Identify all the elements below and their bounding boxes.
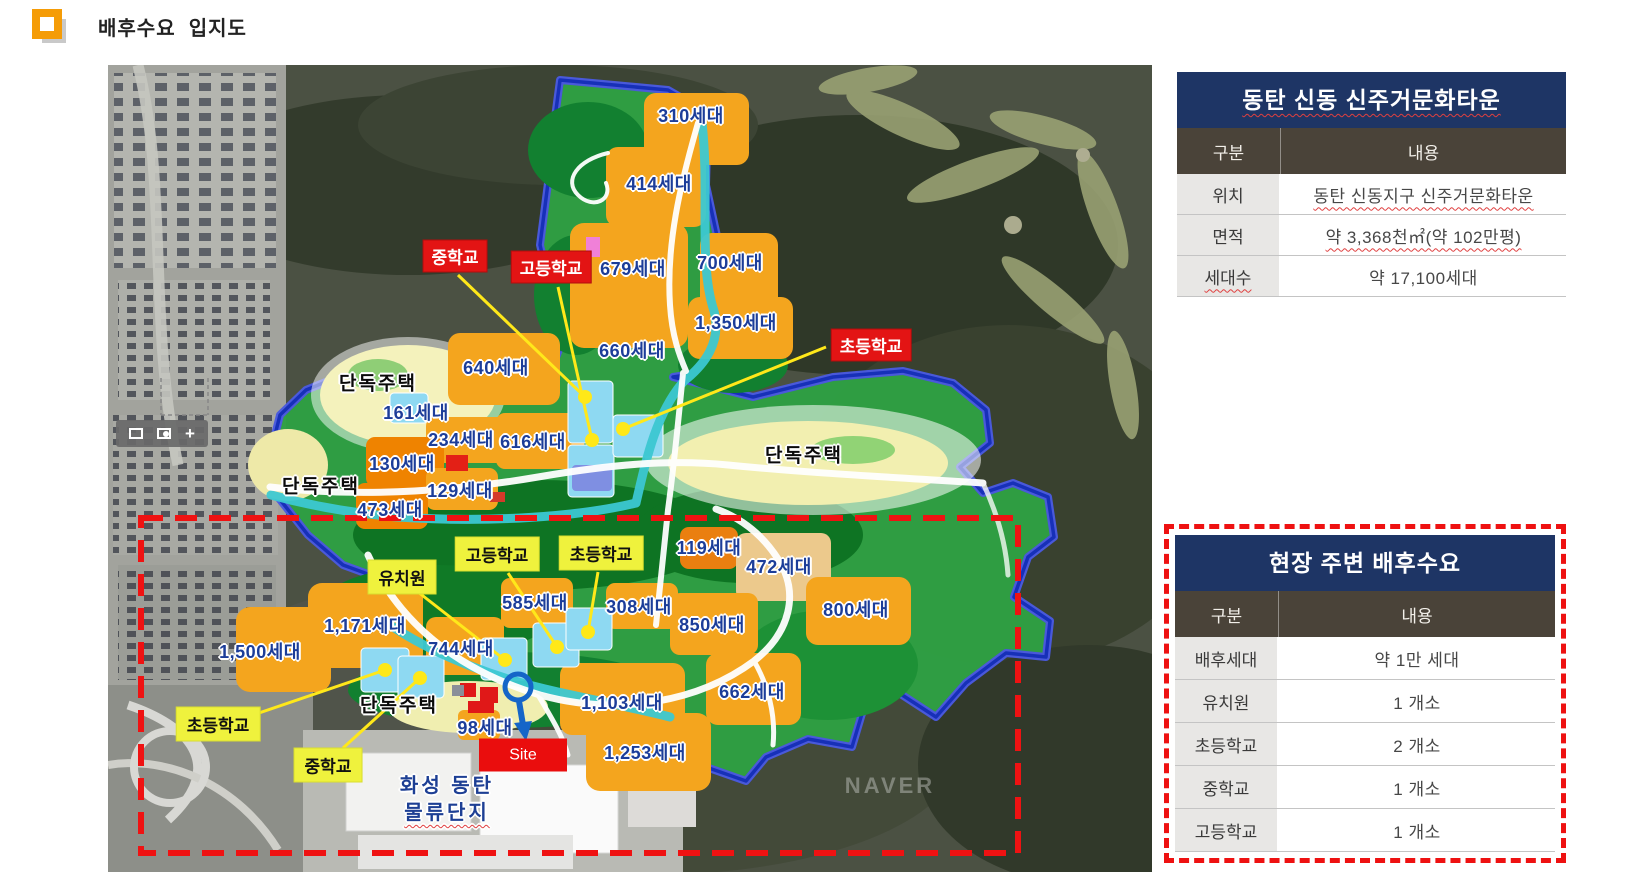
row-label: 면적	[1177, 215, 1281, 255]
table-row: 위치 동탄 신동지구 신주거문화타운	[1177, 174, 1566, 215]
row-label: 중학교	[1175, 766, 1279, 808]
housing-label: 단독주택	[339, 369, 417, 396]
unit-count-label: 662세대	[719, 678, 785, 704]
unit-count-label: 800세대	[823, 596, 889, 622]
unit-count-label: 472세대	[746, 553, 812, 579]
table-row: 면적 약 3,368천㎡(약 102만평)	[1177, 215, 1566, 256]
unit-count-label: 119세대	[677, 534, 742, 560]
unit-count-label: 585세대	[502, 589, 568, 615]
col-header-content: 내용	[1279, 591, 1555, 637]
demand-table-title: 현장 주변 배후수요	[1175, 535, 1555, 591]
row-label: 유치원	[1175, 680, 1279, 722]
table-row: 고등학교 1 개소	[1175, 809, 1555, 852]
unit-count-label: 310세대	[658, 102, 724, 128]
plus-icon[interactable]: +	[185, 425, 195, 442]
col-header-content: 내용	[1281, 128, 1566, 174]
housing-label: 단독주택	[282, 472, 360, 499]
unit-count-label: 1,103세대	[581, 689, 663, 715]
unit-count-label: 161세대	[383, 399, 449, 425]
slide: 배후수요 입지도	[0, 0, 1637, 875]
unit-count-label: 234세대	[428, 426, 494, 452]
unit-count-label: 1,253세대	[604, 739, 686, 765]
row-value: 약 3,368천㎡(약 102만평)	[1281, 215, 1566, 255]
row-value: 1 개소	[1279, 809, 1555, 851]
unit-count-label: 616세대	[500, 428, 566, 454]
window-icon[interactable]	[129, 428, 143, 439]
demand-table-header: 구분 내용	[1175, 591, 1555, 637]
row-label: 고등학교	[1175, 809, 1279, 851]
table-row: 배후세대 약 1만 세대	[1175, 637, 1555, 680]
unit-count-label: 473세대	[357, 496, 423, 522]
demand-table: 현장 주변 배후수요 구분 내용 배후세대 약 1만 세대 유치원 1 개소 초…	[1175, 535, 1555, 852]
unit-count-label: 414세대	[626, 170, 692, 196]
project-table-header: 구분 내용	[1177, 128, 1566, 174]
table-row: 유치원 1 개소	[1175, 680, 1555, 723]
capture-icon[interactable]	[157, 428, 171, 439]
project-table-title: 동탄 신동 신주거문화타운	[1177, 72, 1566, 128]
school-tag-yellow: 중학교	[295, 749, 362, 782]
page-title: 배후수요 입지도	[98, 12, 247, 41]
table-row: 세대수 약 17,100세대	[1177, 256, 1566, 297]
row-label: 초등학교	[1175, 723, 1279, 765]
school-tag-red: 고등학교	[512, 252, 591, 283]
school-tag-red: 중학교	[424, 241, 487, 272]
col-header-category: 구분	[1175, 591, 1279, 637]
site-tag: Site	[479, 739, 567, 772]
row-value: 약 17,100세대	[1281, 256, 1566, 296]
housing-label: 단독주택	[360, 691, 438, 718]
row-value: 2 개소	[1279, 723, 1555, 765]
unit-count-label: 850세대	[679, 611, 745, 637]
orange-square-icon	[32, 9, 62, 39]
unit-count-label: 98세대	[457, 714, 512, 740]
table-row: 초등학교 2 개소	[1175, 723, 1555, 766]
col-header-category: 구분	[1177, 128, 1281, 174]
demand-table-dashed-frame: 현장 주변 배후수요 구분 내용 배후세대 약 1만 세대 유치원 1 개소 초…	[1164, 524, 1566, 863]
location-map: 310세대414세대679세대700세대1,350세대660세대640세대161…	[108, 65, 1152, 872]
school-tag-red: 초등학교	[832, 330, 911, 361]
project-info-table: 동탄 신동 신주거문화타운 구분 내용 위치 동탄 신동지구 신주거문화타운 면…	[1177, 72, 1566, 297]
logistics-label-line1: 화성 동탄	[400, 773, 494, 800]
unit-count-label: 1,500세대	[219, 638, 301, 664]
row-value: 동탄 신동지구 신주거문화타운	[1281, 174, 1566, 214]
school-tag-yellow: 초등학교	[177, 708, 260, 741]
map-watermark: NAVER	[845, 773, 935, 799]
unit-count-label: 744세대	[428, 635, 494, 661]
school-tag-yellow: 고등학교	[456, 538, 539, 571]
table-row: 중학교 1 개소	[1175, 766, 1555, 809]
unit-count-label: 700세대	[697, 249, 763, 275]
unit-count-label: 660세대	[599, 337, 665, 363]
unit-count-label: 640세대	[463, 354, 529, 380]
unit-count-label: 130세대	[369, 450, 435, 476]
school-tag-yellow: 초등학교	[560, 537, 643, 570]
unit-count-label: 308세대	[606, 593, 672, 619]
unit-count-label: 1,171세대	[324, 612, 406, 638]
school-tag-yellow: 유치원	[369, 561, 436, 594]
row-value: 1 개소	[1279, 680, 1555, 722]
unit-count-label: 1,350세대	[695, 309, 777, 335]
row-value: 약 1만 세대	[1279, 637, 1555, 679]
row-label: 배후세대	[1175, 637, 1279, 679]
row-label: 위치	[1177, 174, 1281, 214]
logistics-label: 화성 동탄 물류단지	[400, 773, 494, 827]
housing-label: 단독주택	[765, 441, 843, 468]
unit-count-label: 129세대	[427, 477, 493, 503]
slide-header: 배후수요 입지도	[30, 6, 247, 46]
row-label: 세대수	[1177, 256, 1281, 296]
slide-bullet-icon	[30, 7, 70, 45]
unit-count-label: 679세대	[600, 255, 666, 281]
capture-toolbar[interactable]: +	[116, 420, 208, 447]
row-value: 1 개소	[1279, 766, 1555, 808]
logistics-label-line2: 물류단지	[400, 800, 494, 827]
